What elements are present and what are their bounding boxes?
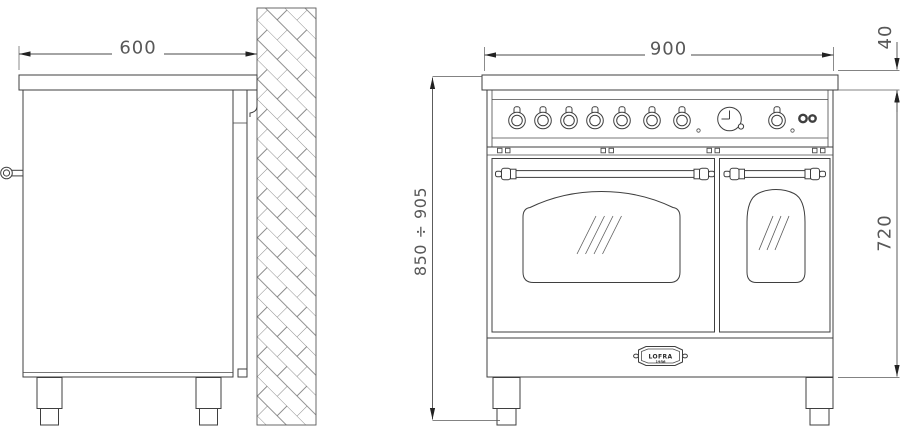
- side-view: 600: [1, 8, 316, 425]
- foot: [806, 378, 833, 409]
- dimension-label-40: 40: [875, 25, 896, 50]
- foot: [493, 378, 520, 409]
- logo-screw: [683, 354, 688, 358]
- front-view: LOFRA 1956 900 40 850 ÷ 905: [411, 25, 900, 425]
- side-feet: [37, 378, 221, 426]
- foot-tip: [810, 409, 829, 426]
- main-door-window: [523, 192, 680, 283]
- secondary-oven-door: [720, 159, 831, 333]
- side-door-handle: [1, 167, 23, 179]
- foot: [196, 378, 221, 409]
- handle-stem: [11, 170, 23, 176]
- rear-spacer-profile: [250, 90, 257, 117]
- range-body-side: [23, 90, 233, 377]
- back-foot-block: [238, 369, 247, 377]
- dimension-front-width: 900: [485, 39, 834, 72]
- foot-tip: [497, 409, 516, 426]
- secondary-door-window: [747, 190, 805, 283]
- cooktop-front: [482, 75, 838, 90]
- dimension-label-600: 600: [119, 38, 156, 59]
- foot-tip: [200, 409, 218, 426]
- clock-stem: [738, 124, 743, 129]
- dimension-side-depth: 600: [19, 38, 257, 71]
- cooktop-side: [19, 75, 257, 90]
- foot: [37, 378, 62, 409]
- dimension-label-900: 900: [650, 39, 687, 60]
- wall-section-hatch: [257, 8, 316, 425]
- foot-tip: [41, 409, 59, 426]
- front-feet: [493, 378, 833, 426]
- dimension-label-850-905: 850 ÷ 905: [411, 187, 430, 276]
- dimension-cooktop-height: 40: [838, 25, 900, 112]
- handle-knob-outer: [1, 167, 13, 179]
- logo-plate: LOFRA 1956: [634, 347, 688, 366]
- installation-drawing: 600: [0, 0, 900, 426]
- logo-year: 1956: [655, 360, 666, 364]
- main-oven-door: [492, 159, 715, 333]
- dimension-body-height: 720: [838, 91, 900, 378]
- dimension-label-720: 720: [875, 214, 896, 251]
- logo-screw: [634, 354, 639, 358]
